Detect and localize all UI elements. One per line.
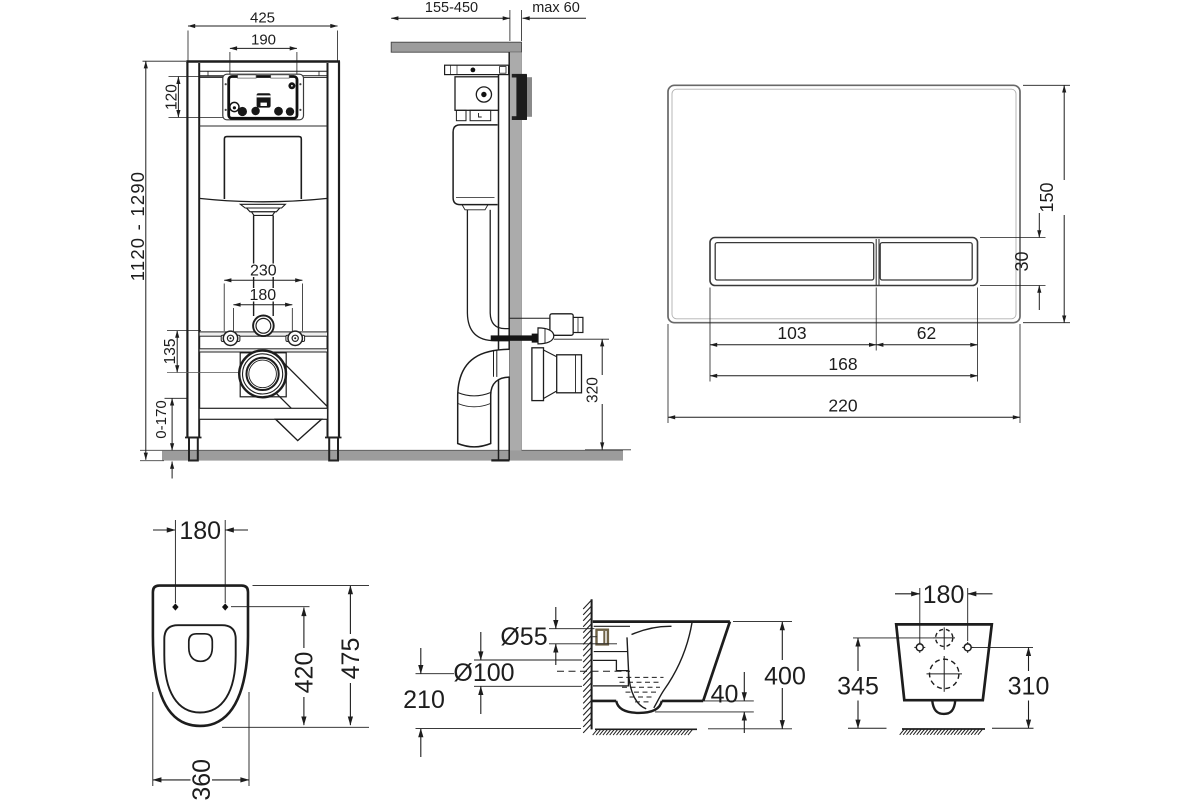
svg-text:120: 120 xyxy=(164,84,181,110)
svg-text:310: 310 xyxy=(1008,673,1050,701)
svg-text:155-450: 155-450 xyxy=(425,0,478,16)
svg-text:210: 210 xyxy=(403,686,445,714)
svg-text:62: 62 xyxy=(917,323,936,343)
svg-text:425: 425 xyxy=(250,10,275,27)
svg-text:180: 180 xyxy=(179,517,221,545)
svg-text:180: 180 xyxy=(249,287,276,304)
svg-text:0-170: 0-170 xyxy=(153,400,170,438)
svg-text:1120 - 1290: 1120 - 1290 xyxy=(127,171,148,282)
svg-text:180: 180 xyxy=(923,581,965,609)
svg-text:320: 320 xyxy=(585,377,602,403)
svg-text:103: 103 xyxy=(777,323,806,343)
svg-text:Ø55: Ø55 xyxy=(500,623,547,651)
svg-text:150: 150 xyxy=(1037,182,1057,212)
svg-text:168: 168 xyxy=(828,354,857,374)
svg-text:230: 230 xyxy=(250,263,277,280)
svg-text:40: 40 xyxy=(711,681,739,709)
svg-text:360: 360 xyxy=(188,759,216,800)
svg-text:190: 190 xyxy=(251,32,276,49)
svg-text:475: 475 xyxy=(337,638,365,680)
svg-text:30: 30 xyxy=(1012,251,1032,271)
svg-text:420: 420 xyxy=(291,652,319,694)
svg-text:max 60: max 60 xyxy=(532,0,580,16)
svg-text:345: 345 xyxy=(837,673,879,701)
svg-text:Ø100: Ø100 xyxy=(453,659,514,687)
svg-text:135: 135 xyxy=(162,338,179,364)
svg-text:220: 220 xyxy=(828,396,857,416)
svg-text:400: 400 xyxy=(764,663,806,691)
